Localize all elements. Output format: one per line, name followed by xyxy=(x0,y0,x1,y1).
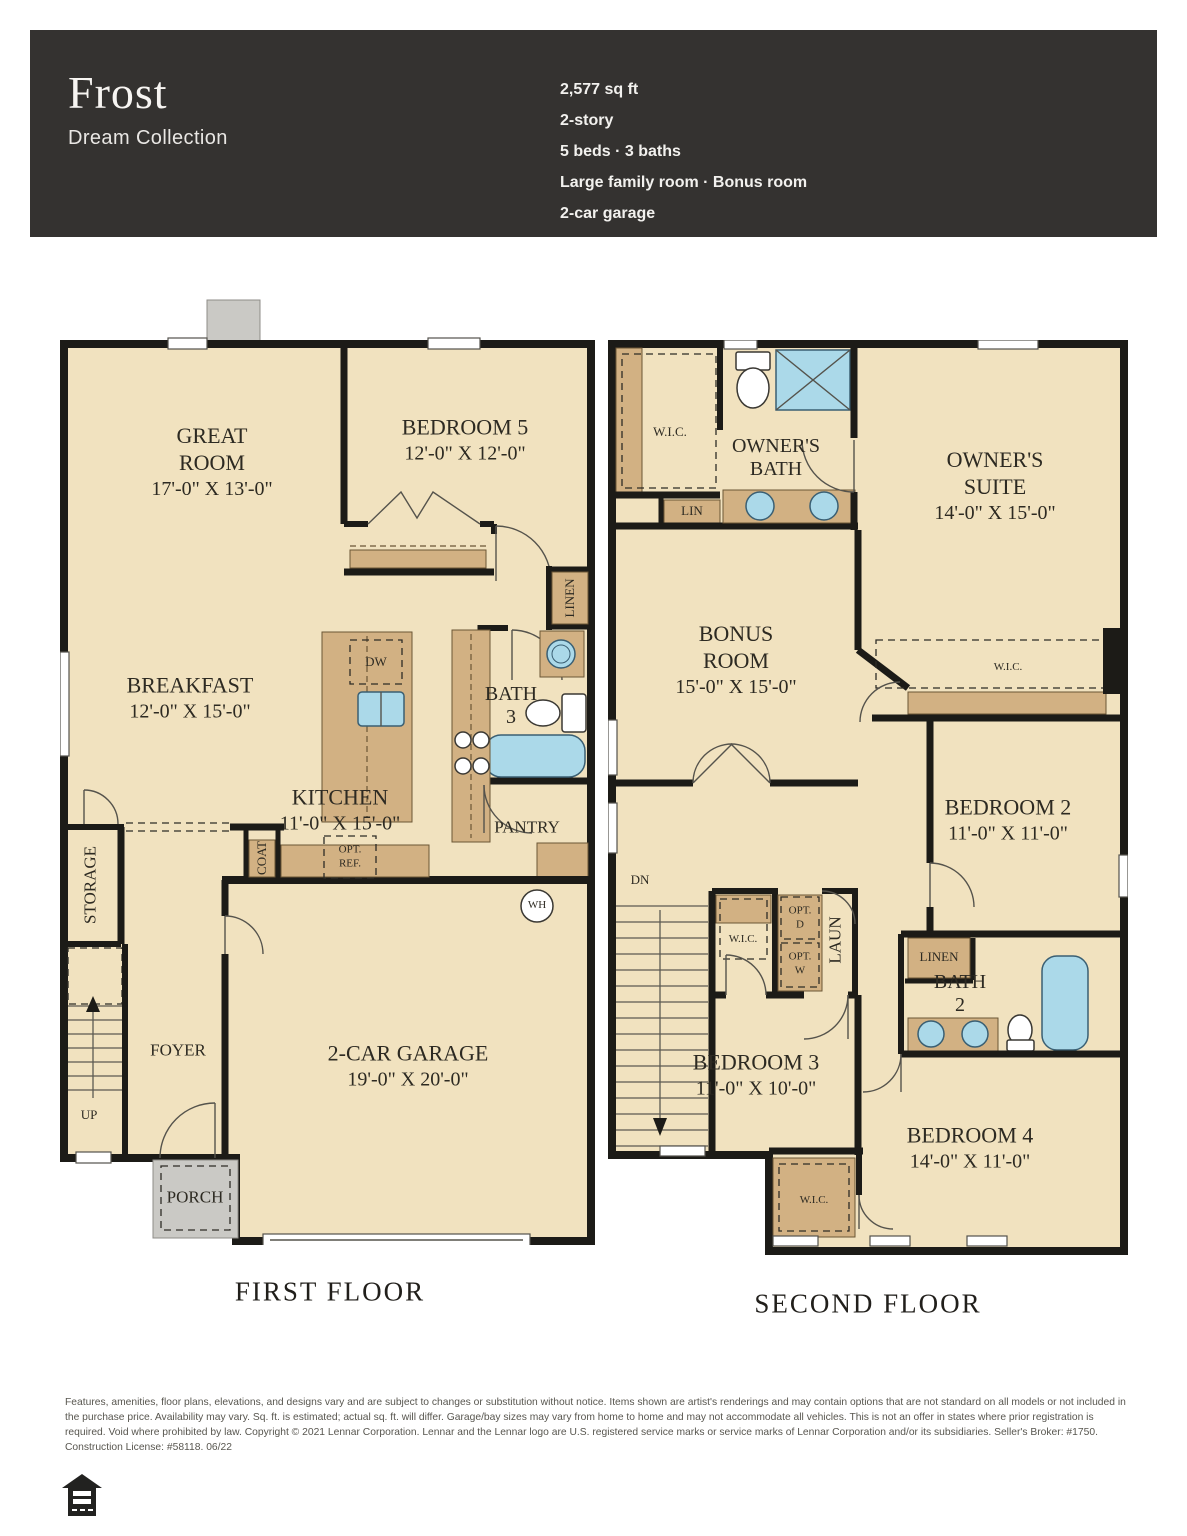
stove-burner xyxy=(455,758,471,774)
collection-name: Dream Collection xyxy=(68,127,228,150)
owner-toilet xyxy=(737,368,769,408)
pantry-label: PANTRY xyxy=(494,818,560,839)
pantry-shelf xyxy=(537,843,588,877)
bath3-label: BATH 3 xyxy=(485,683,537,729)
owner-sink xyxy=(746,492,774,520)
bedroom2-label: BEDROOM 2 11'-0" X 11'-0" xyxy=(945,794,1072,845)
spec-list: 2,577 sq ft 2-story 5 beds · 3 baths Lar… xyxy=(560,74,807,229)
lin-label: LIN xyxy=(681,503,703,519)
window xyxy=(724,340,757,349)
window xyxy=(870,1236,910,1246)
header-banner: Frost Dream Collection 2,577 sq ft 2-sto… xyxy=(30,30,1157,237)
opt-ref-label: OPT. REF. xyxy=(339,843,362,871)
spec-stories: 2-story xyxy=(560,105,807,136)
water-heater-label: WH xyxy=(528,899,546,913)
chimney xyxy=(207,300,260,346)
owner-wic-shelf xyxy=(616,348,642,493)
bath2-toilet-tank xyxy=(1007,1040,1034,1051)
window xyxy=(773,1236,818,1246)
window xyxy=(168,338,207,349)
owners-suite-label: OWNER'S SUITE 14'-0" X 15'-0" xyxy=(934,447,1055,525)
up-label: UP xyxy=(81,1107,98,1123)
window xyxy=(660,1146,705,1156)
storage-label: STORAGE xyxy=(81,846,102,924)
owners-bath-label: OWNER'S BATH xyxy=(732,435,820,481)
first-floor-plan: GREAT ROOM 17'-0" X 13'-0" BEDROOM 5 12'… xyxy=(60,294,595,1245)
window xyxy=(967,1236,1007,1246)
bath2-tub xyxy=(1042,956,1088,1050)
first-floor-caption: FIRST FLOOR xyxy=(235,1277,425,1308)
bath3-sink xyxy=(547,640,575,668)
bath3-toilet-tank xyxy=(562,694,586,732)
equal-housing-logo xyxy=(60,1472,104,1520)
bonus-room-label: BONUS ROOM 15'-0" X 15'-0" xyxy=(675,621,796,699)
bath3-tub xyxy=(485,735,585,777)
hall-wic-label: W.I.C. xyxy=(729,933,758,947)
window xyxy=(60,652,69,756)
stove-burner xyxy=(473,732,489,748)
spec-garage: 2-car garage xyxy=(560,198,807,229)
great-room-label: GREAT ROOM 17'-0" X 13'-0" xyxy=(147,423,277,501)
sf-linen-label: LINEN xyxy=(920,949,959,965)
bottom-wic-label: W.I.C. xyxy=(800,1194,829,1208)
linen-label: LINEN xyxy=(562,579,578,618)
owner-wic2-label: W.I.C. xyxy=(994,661,1023,675)
window xyxy=(76,1152,111,1163)
garage-label: 2-CAR GARAGE 19'-0" X 20'-0" xyxy=(328,1040,489,1091)
bath2-sink xyxy=(962,1021,988,1047)
foyer-label: FOYER xyxy=(150,1041,206,1062)
bedroom4-label: BEDROOM 4 14'-0" X 11'-0" xyxy=(907,1122,1034,1173)
spec-rooms: Large family room · Bonus room xyxy=(560,167,807,198)
opt-washer-label: OPT. W xyxy=(789,950,812,978)
window xyxy=(608,803,617,853)
window xyxy=(608,720,617,775)
header-left: Frost Dream Collection xyxy=(68,66,228,150)
second-floor-plan: W.I.C. OWNER'S BATH OWNER'S SUITE 14'-0"… xyxy=(608,340,1128,1255)
spec-beds-baths: 5 beds · 3 baths xyxy=(560,136,807,167)
owner-sink xyxy=(810,492,838,520)
owner-wic2-shelf xyxy=(908,692,1106,714)
opt-dryer-label: OPT. D xyxy=(789,904,812,932)
owner-wic-label: W.I.C. xyxy=(653,424,687,440)
dishwasher-label: DW xyxy=(365,654,387,670)
second-floor-caption: SECOND FLOOR xyxy=(754,1289,981,1320)
spec-sqft: 2,577 sq ft xyxy=(560,74,807,105)
plan-name: Frost xyxy=(68,66,228,119)
bedroom3-label: BEDROOM 3 11'-0" X 10'-0" xyxy=(693,1049,820,1100)
floorplan-sheet: Frost Dream Collection 2,577 sq ft 2-sto… xyxy=(0,0,1187,1536)
stove-burner xyxy=(455,732,471,748)
window xyxy=(428,338,480,349)
breakfast-label: BREAKFAST 12'-0" X 15'-0" xyxy=(127,672,254,723)
window xyxy=(978,340,1038,349)
coat-label: COAT xyxy=(254,841,270,875)
bedroom5-closet-shelf xyxy=(350,550,486,568)
window xyxy=(1119,855,1128,897)
laundry-label: LAUN xyxy=(826,916,847,963)
stove-burner xyxy=(473,758,489,774)
kitchen-label: KITCHEN 11'-0" X 15'-0" xyxy=(280,784,401,835)
bedroom5-label: BEDROOM 5 12'-0" X 12'-0" xyxy=(402,414,529,465)
bath2-sink xyxy=(918,1021,944,1047)
legal-disclaimer: Features, amenities, floor plans, elevat… xyxy=(65,1396,1129,1456)
porch-label: PORCH xyxy=(167,1188,224,1209)
dn-label: DN xyxy=(631,872,650,888)
bath2-label: BATH 2 xyxy=(934,971,986,1017)
